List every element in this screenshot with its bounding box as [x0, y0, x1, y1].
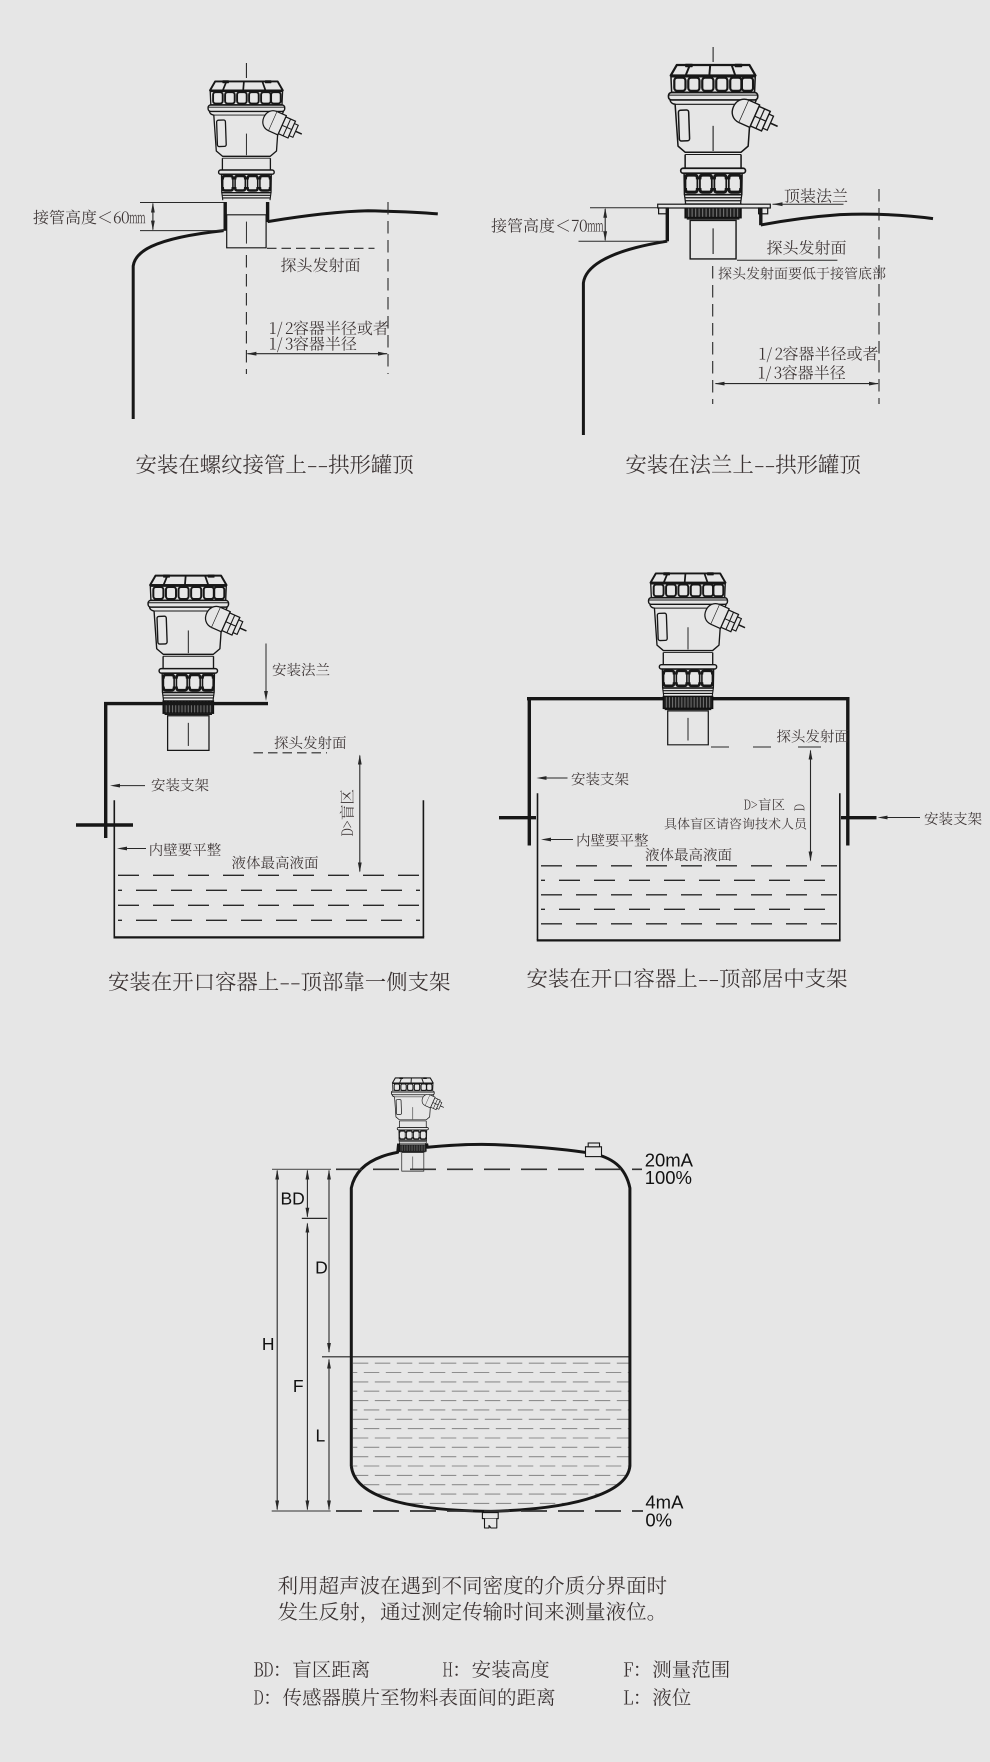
- svg-text:F: F: [293, 1376, 304, 1396]
- svg-text:BD: BD: [280, 1189, 304, 1209]
- svg-text:H: H: [262, 1334, 275, 1354]
- svg-text:0%: 0%: [645, 1510, 672, 1531]
- svg-text:100%: 100%: [645, 1167, 692, 1188]
- svg-text:L: L: [316, 1426, 326, 1446]
- svg-text:D: D: [315, 1258, 328, 1278]
